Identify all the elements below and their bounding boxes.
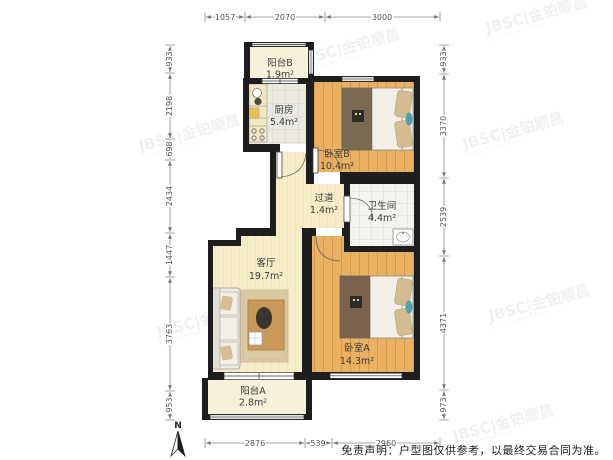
dimension-label: 2434 <box>165 186 174 206</box>
svg-text:14.3m²: 14.3m² <box>340 356 374 367</box>
balcony-a-slider <box>224 373 294 380</box>
dimension-label: 3370 <box>439 116 448 136</box>
window <box>210 415 304 419</box>
dimension-label: 2070 <box>275 13 295 22</box>
dimension-label: 698 <box>165 141 174 156</box>
svg-text:2.8m²: 2.8m² <box>239 398 267 409</box>
svg-text:5.4m²: 5.4m² <box>270 117 298 128</box>
sink-icon <box>253 89 262 98</box>
bed-bedroom-b <box>342 88 413 150</box>
dimension-label: 1447 <box>165 245 174 265</box>
dimension-label: 2539 <box>439 207 448 227</box>
dimension-label: 973 <box>439 397 448 412</box>
dimension-left: 933 2198 698 2434 1447 3763 953 <box>165 45 175 420</box>
svg-text:1.4m²: 1.4m² <box>310 205 338 216</box>
svg-text:卫生间: 卫生间 <box>368 200 397 212</box>
kitchen-counter <box>249 84 267 142</box>
dimension-top: 1057 2070 3000 <box>205 12 440 22</box>
svg-text:卧室B: 卧室B <box>324 148 350 160</box>
svg-text:过道: 过道 <box>314 192 334 204</box>
dimension-label: 539 <box>310 439 325 448</box>
svg-text:4.4m²: 4.4m² <box>368 213 396 224</box>
floor-plan-canvas: 阳台B1.9m² 厨房5.4m² 卧室B10.4m² 过道1.4m² 卫生间4.… <box>0 0 613 460</box>
dimension-label: 3763 <box>165 324 174 344</box>
svg-text:客厅: 客厅 <box>256 257 276 269</box>
dimension-label: 953 <box>165 397 174 412</box>
svg-text:卧室A: 卧室A <box>344 342 370 354</box>
compass-north-label: N <box>174 421 182 431</box>
compass: N <box>171 421 185 456</box>
svg-text:1.9m²: 1.9m² <box>266 70 294 81</box>
svg-text:10.4m²: 10.4m² <box>320 161 354 172</box>
room-label-balcony-b: 阳台B1.9m² <box>266 57 294 81</box>
dimension-label: 3000 <box>372 13 392 22</box>
window <box>342 77 374 81</box>
dimension-label: 2876 <box>245 439 265 448</box>
window <box>252 43 306 46</box>
svg-text:19.7m²: 19.7m² <box>249 271 283 282</box>
svg-text:阳台A: 阳台A <box>240 385 266 397</box>
disclaimer-text: 免责声明：户型图仅供参考，以最终交易合同为准。 <box>342 442 607 458</box>
dimension-label: 2198 <box>165 96 174 116</box>
dimension-right: 933 3370 2539 4371 973 <box>439 45 449 420</box>
coffee-table <box>248 300 284 350</box>
bed-bedroom-a <box>340 276 413 338</box>
dimension-label: 933 <box>165 51 174 66</box>
compass-needle-icon <box>171 431 178 456</box>
svg-text:厨房: 厨房 <box>274 104 293 116</box>
window <box>330 373 402 378</box>
bathroom-sink <box>393 229 413 245</box>
basin-icon <box>254 98 261 105</box>
svg-text:阳台B: 阳台B <box>267 57 293 69</box>
compass-needle-icon <box>178 431 185 456</box>
dimension-label: 1057 <box>215 13 235 22</box>
dimension-label: 4371 <box>439 313 448 333</box>
floor-plan-image: JBSC|金铂顺昌ASSET MANAGEMENT JBSC|金铂顺昌ASSET… <box>0 0 613 460</box>
sofa <box>212 288 240 369</box>
room-label-balcony-a: 阳台A2.8m² <box>239 385 267 409</box>
dimension-label: 933 <box>439 51 448 66</box>
window <box>309 50 313 74</box>
